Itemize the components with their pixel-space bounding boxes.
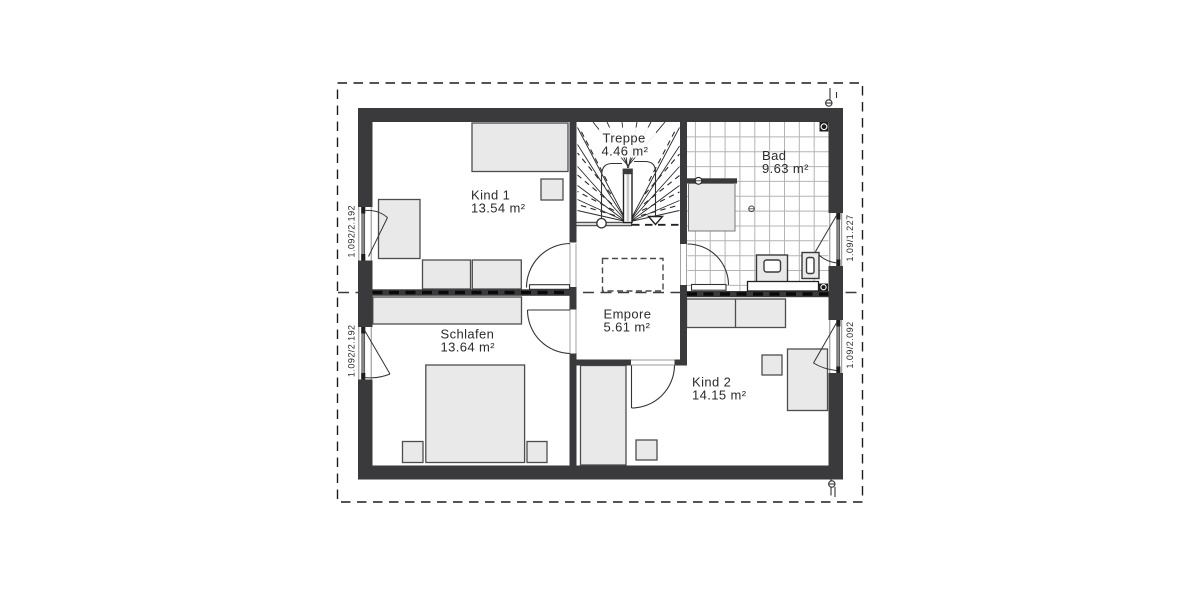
svg-text:9.63 m²: 9.63 m² xyxy=(762,161,809,176)
svg-text:4.46 m²: 4.46 m² xyxy=(602,144,649,159)
svg-text:14.15 m²: 14.15 m² xyxy=(692,388,747,403)
svg-text:1.092/2.192: 1.092/2.192 xyxy=(347,325,357,378)
svg-text:13.64 m²: 13.64 m² xyxy=(441,340,496,355)
svg-text:5.61 m²: 5.61 m² xyxy=(604,320,651,335)
svg-text:1.09/1.227: 1.09/1.227 xyxy=(845,214,855,261)
svg-text:1.092/2.192: 1.092/2.192 xyxy=(347,205,357,258)
svg-text:13.54 m²: 13.54 m² xyxy=(471,201,526,216)
svg-text:1.09/2.092: 1.09/2.092 xyxy=(845,321,855,368)
